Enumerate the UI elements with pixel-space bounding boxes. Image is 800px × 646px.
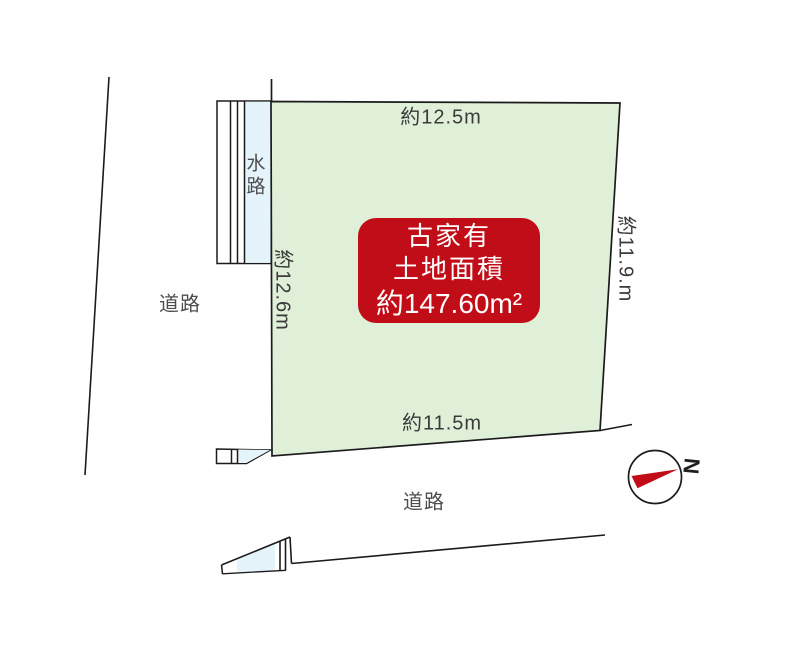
bottom-road-lower-edge xyxy=(292,535,606,564)
land-plot-diagram: 約12.5m 約12.6m 約11.9.m 約11.5m 水路 道路 道路 N … xyxy=(0,0,800,646)
waterway-piece xyxy=(217,449,271,464)
dim-left: 約12.6m xyxy=(271,249,300,331)
left-road-edge-line xyxy=(85,77,109,475)
dim-right: 約11.9.m xyxy=(614,216,643,303)
bottom-waterway-crossing-water xyxy=(237,543,275,573)
bottom-road xyxy=(222,535,606,574)
badge-line-old-house: 古家有 xyxy=(358,220,540,253)
diagram-drawing xyxy=(0,0,800,646)
bottom-road-upper-edge-extension xyxy=(600,425,632,431)
dim-bottom: 約11.5m xyxy=(402,407,482,436)
bottom-crossing-right-edge xyxy=(290,537,292,564)
north-letter: N xyxy=(677,457,705,476)
badge-line-land-area-title: 土地面積 xyxy=(358,253,540,286)
dim-top: 約12.5m xyxy=(400,101,482,130)
bottom-crossing-left-edge xyxy=(222,565,223,574)
badge-line-land-area-value: 約147.60m² xyxy=(358,286,540,321)
waterway-piece-water xyxy=(238,450,270,464)
info-badge: 古家有 土地面積 約147.60m² xyxy=(358,218,540,323)
compass xyxy=(629,451,682,504)
waterway-label: 水路 xyxy=(241,153,268,199)
road-label-left: 道路 xyxy=(159,288,201,317)
road-label-bottom: 道路 xyxy=(403,486,445,515)
